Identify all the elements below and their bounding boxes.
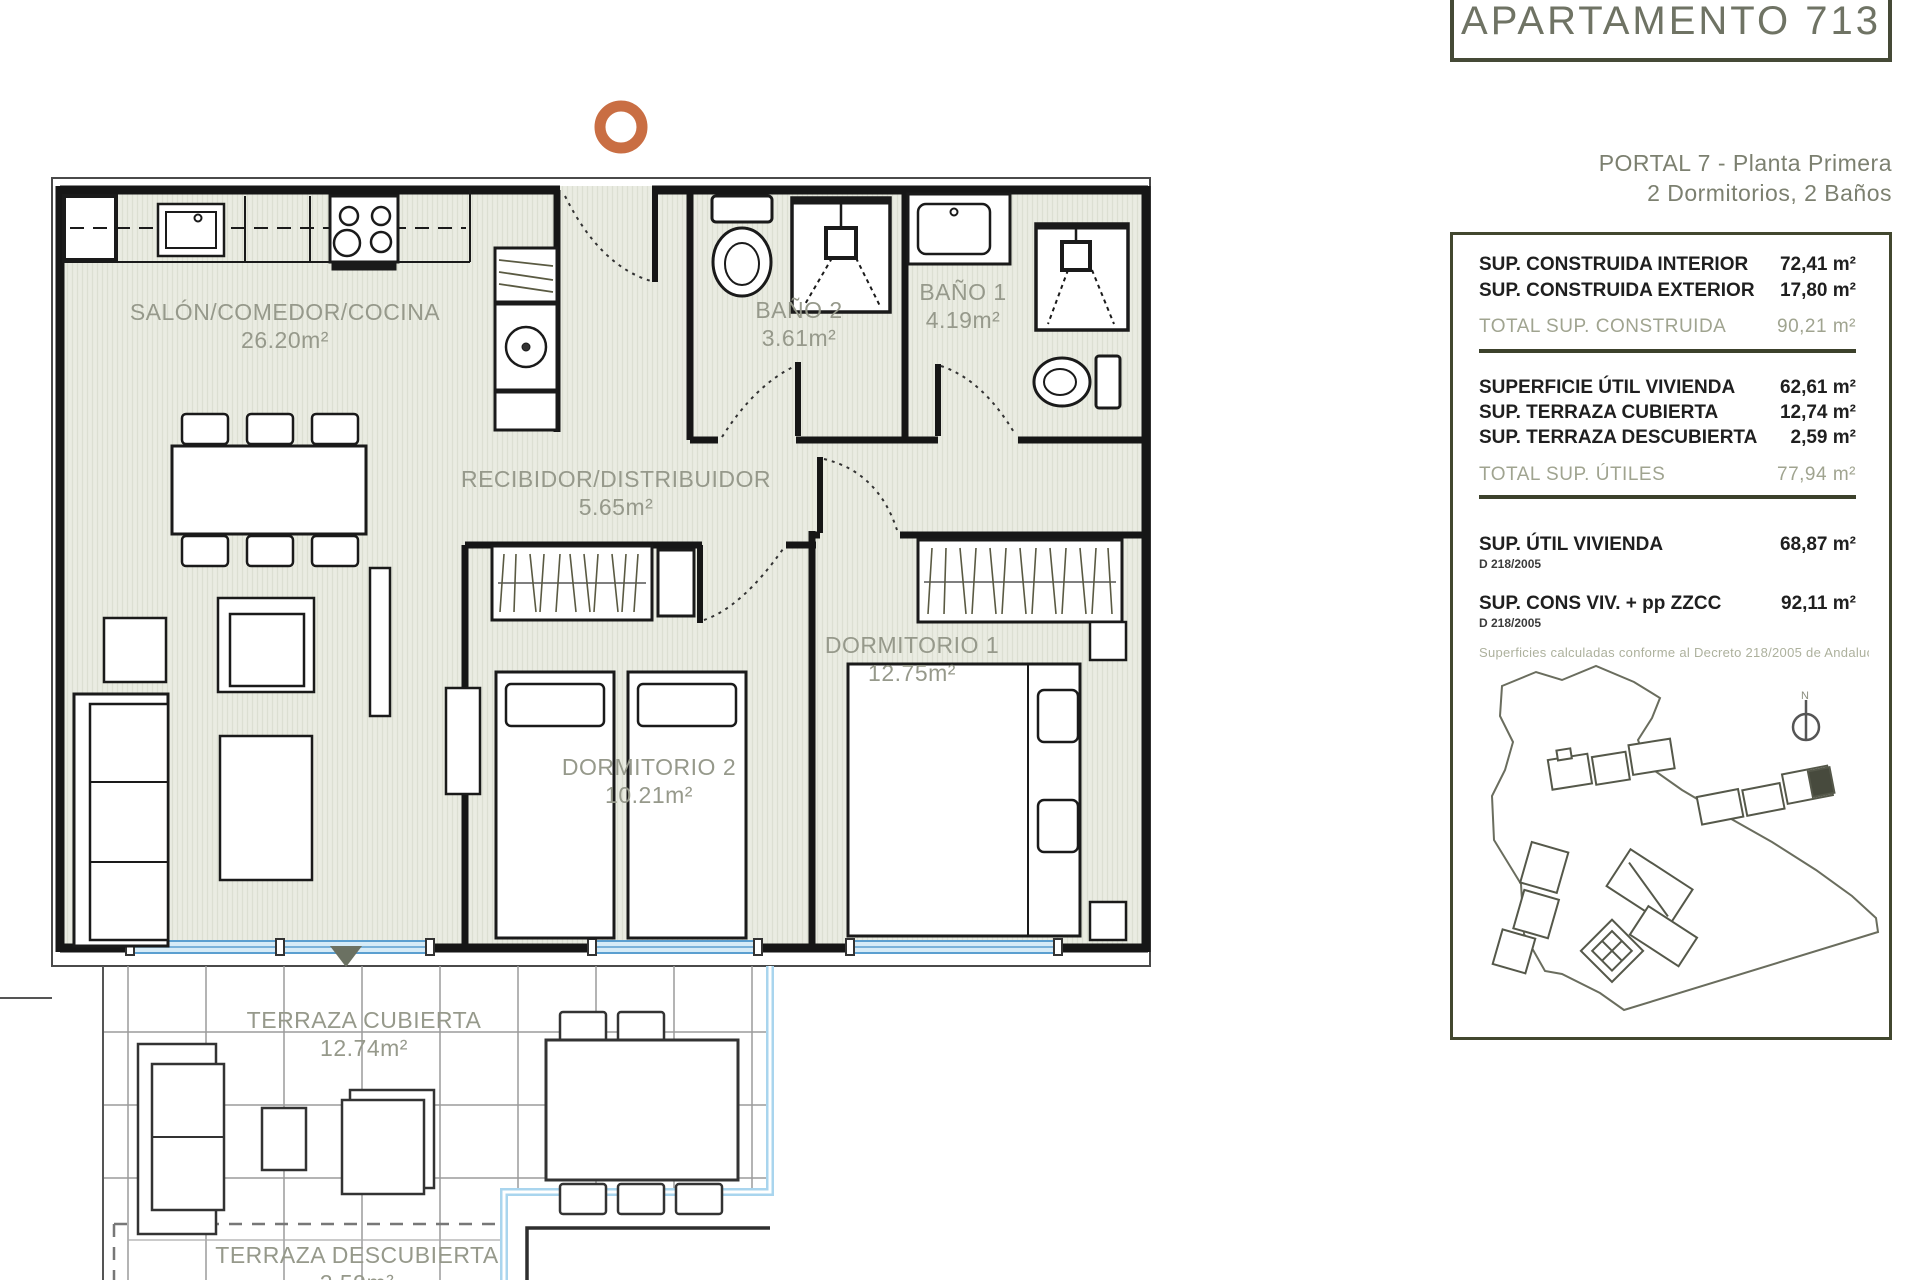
brand-logo-icon [600,106,642,148]
surface-row: SUP. TERRAZA CUBIERTA 12,74 m² [1479,402,1856,424]
utility-units [495,248,557,430]
portal-block: PORTAL 7 - Planta Primera 2 Dormitorios,… [1599,148,1892,208]
wardrobe [918,540,1122,622]
sofa [74,694,168,946]
room-label-terraza-cubierta: TERRAZA CUBIERTA 12.74m² [247,1006,482,1062]
floorplan-page: N APARTAMENTO 713 PORTAL 7 - Planta Prim… [0,0,1920,1280]
outdoor-side-table [262,1108,306,1170]
divider [1479,349,1856,353]
surface-row: SUP. CONSTRUIDA INTERIOR 72,41 m² [1479,254,1856,276]
wardrobe [492,546,652,620]
outdoor-dining-set [546,1012,738,1214]
side-table [104,618,166,682]
washbasin-icon [908,194,1010,264]
surface-info-panel: SUP. CONSTRUIDA INTERIOR 72,41 m² SUP. C… [1450,232,1892,1040]
decreto-note: Superficies calculadas conforme al Decre… [1479,645,1869,660]
portal-line: PORTAL 7 - Planta Primera [1599,148,1892,178]
washing-machine-icon [495,304,557,390]
config-line: 2 Dormitorios, 2 Baños [1599,178,1892,208]
divider [1479,495,1856,499]
cabinet [658,550,694,616]
surface-row: SUP. CONSTRUIDA EXTERIOR 17,80 m² [1479,280,1856,302]
tv-sideboard [370,568,390,716]
rack-icon [495,248,557,302]
room-label-bano2: BAÑO 2 3.61m² [755,296,842,352]
decreto-ref: D 218/2005 [1479,616,1541,630]
surface-total-row: TOTAL SUP. ÚTILES 77,94 m² [1479,464,1856,486]
room-label-bano1: BAÑO 1 4.19m² [919,278,1006,334]
nightstand [1090,902,1126,940]
room-label-recibidor: RECIBIDOR/DISTRIBUIDOR 5.65m² [461,465,771,521]
window-glazing [126,939,1062,955]
armchair [218,598,314,692]
shower-icon [792,198,890,312]
toilet-icon [712,196,772,296]
surface-row: SUP. TERRAZA DESCUBIERTA 2,59 m² [1479,427,1856,449]
double-bed [848,664,1080,936]
entrance-marker-icon [330,946,362,967]
toilet-icon [1034,356,1120,408]
room-label-dormitorio2: DORMITORIO 2 10.21m² [562,753,736,809]
decreto-ref: D 218/2005 [1479,557,1541,571]
nightstand [1090,622,1126,660]
coffee-table [220,736,312,880]
surface-row: SUP. CONS VIV. + pp ZZCC 92,11 m² [1479,593,1856,615]
lower-floor-edge [527,1228,770,1280]
surface-row: SUP. ÚTIL VIVIENDA 68,87 m² [1479,534,1856,556]
dining-table [172,414,366,566]
apartment-title-box: APARTAMENTO 713 [1450,0,1892,62]
bathroom2-fixtures [712,196,890,312]
apartment-title: APARTAMENTO 713 [1461,0,1881,44]
sink-icon [158,204,224,256]
dresser [446,688,480,794]
surface-total-row: TOTAL SUP. CONSTRUIDA 90,21 m² [1479,316,1856,338]
surface-row: SUPERFICIE ÚTIL VIVIENDA 62,61 m² [1479,377,1856,399]
shower-icon [1036,224,1128,330]
hob-icon [330,196,398,270]
room-label-dormitorio1: DORMITORIO 1 12.75m² [825,631,999,687]
room-label-salon: SALÓN/COMEDOR/COCINA 26.20m² [130,298,440,354]
room-label-terraza-descubierta: TERRAZA DESCUBIERTA 2.59m² [215,1241,498,1280]
